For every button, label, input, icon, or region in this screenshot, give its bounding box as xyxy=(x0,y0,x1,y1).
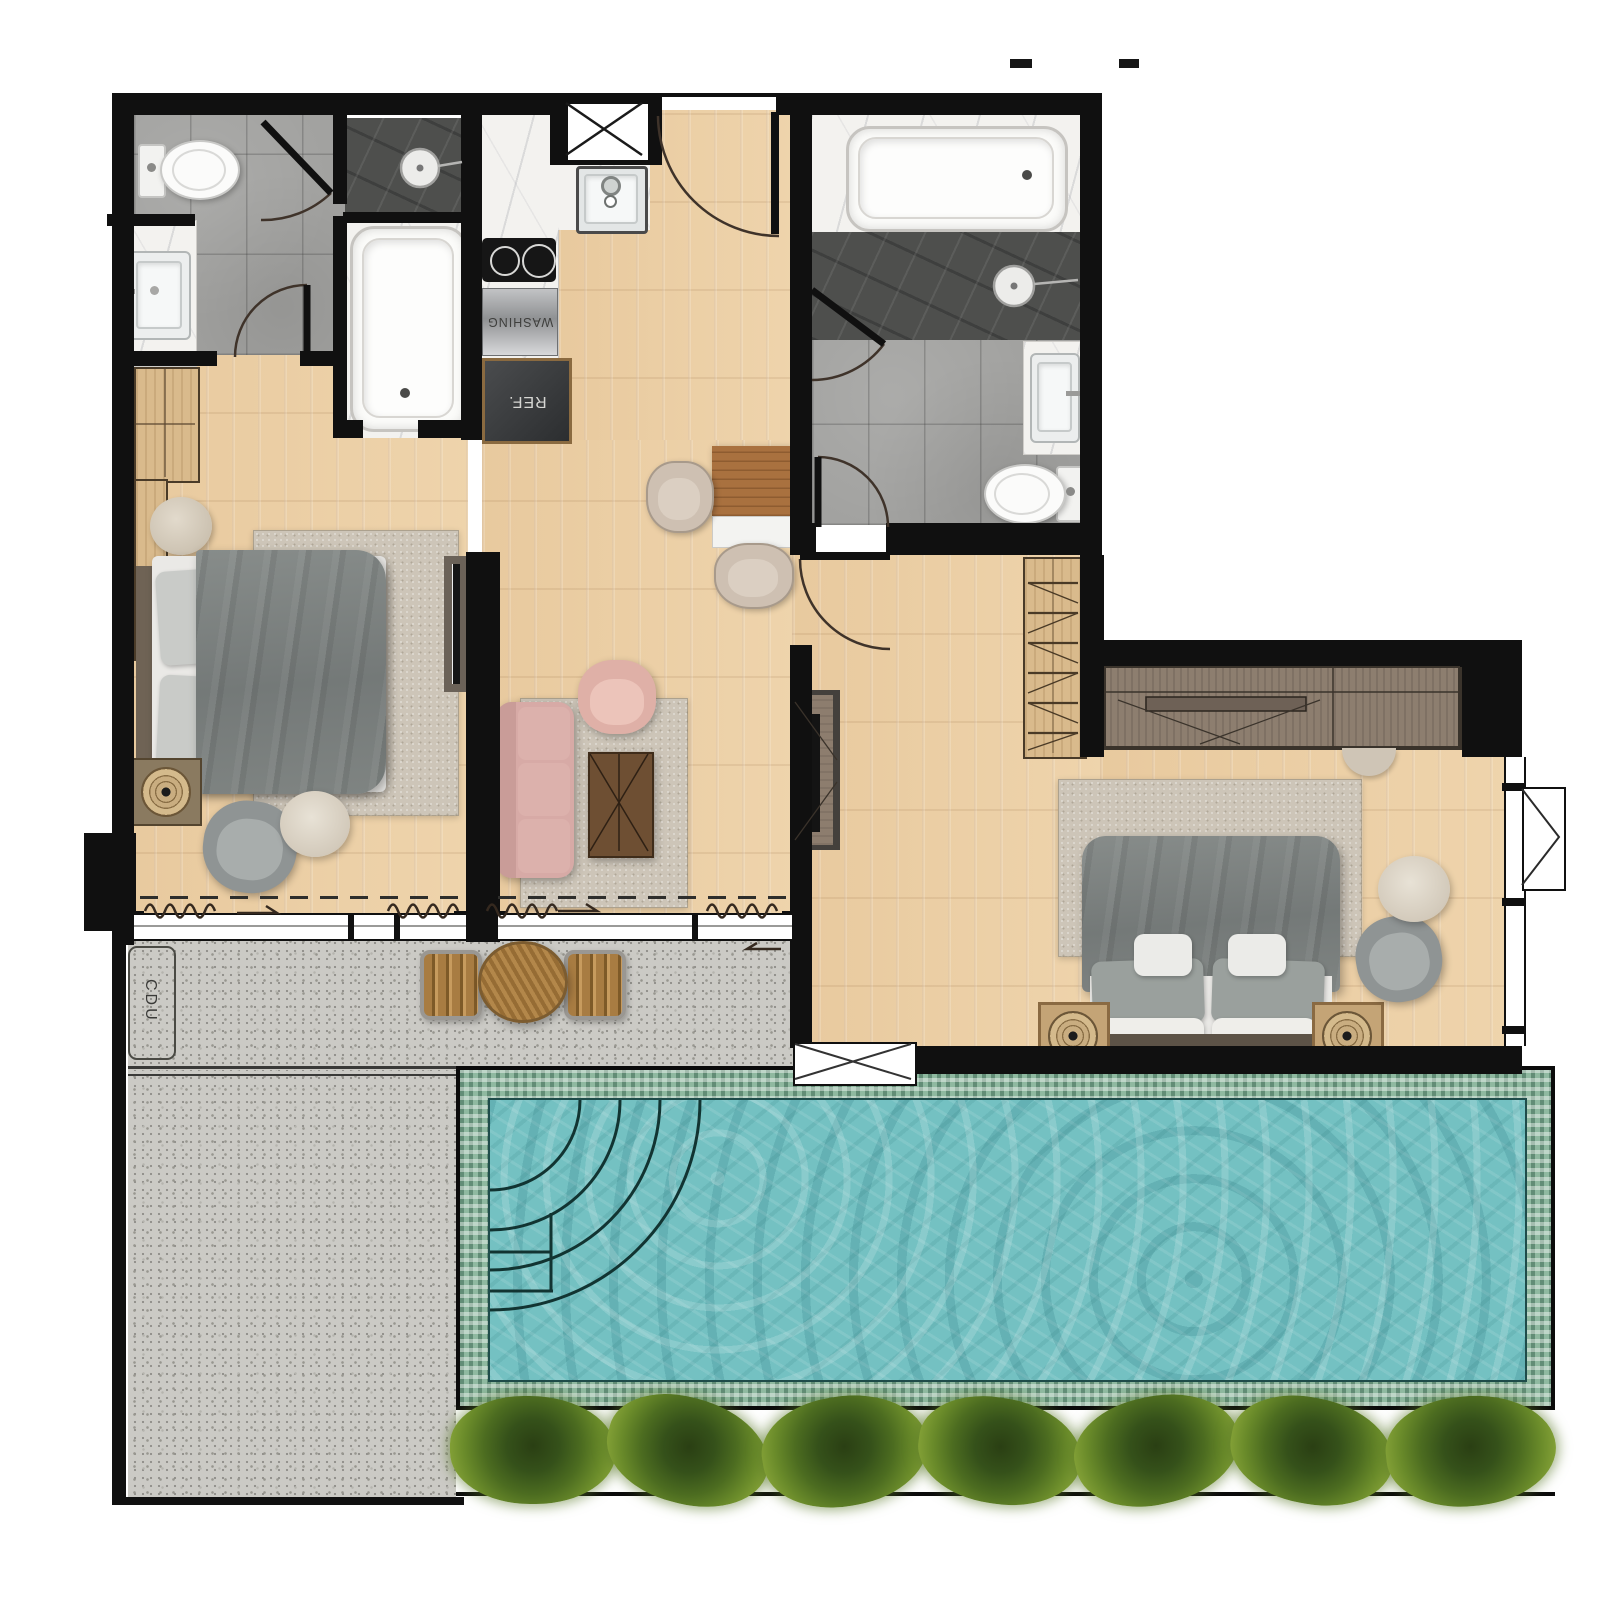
wall-bathroom1-bottom xyxy=(112,351,217,366)
wall-vanity1-stub xyxy=(107,214,195,226)
bathroom2-sink-basin xyxy=(1037,362,1072,432)
kitchen-faucet-knob xyxy=(604,195,617,208)
bedroom1-pouf xyxy=(150,497,212,555)
dining-chair xyxy=(714,543,794,609)
wall-shower1-stub xyxy=(333,112,347,204)
wall-left-lower xyxy=(112,945,126,1502)
wall-bathroom2-bottom xyxy=(886,523,1102,555)
bedroom1-nightstand xyxy=(128,758,202,826)
kitchen-faucet xyxy=(601,176,621,196)
bathtub2-drain xyxy=(1022,170,1032,180)
living-armchair xyxy=(578,660,656,734)
wall-bathroom2-left xyxy=(790,93,812,555)
floor-plan-canvas: WASHING REF. xyxy=(0,0,1600,1600)
bedroom1-wardrobe xyxy=(134,367,200,483)
bathroom1-faucet-knob xyxy=(150,286,159,295)
wall-left-pier xyxy=(84,833,136,931)
wall-yard-bottom xyxy=(112,1497,464,1505)
wall-bathroom2-bottom xyxy=(790,523,816,555)
bedroom1-duvet xyxy=(196,550,386,794)
wall-tub-room-left xyxy=(333,216,347,438)
master-pillow xyxy=(1228,934,1286,976)
terrace-chair xyxy=(564,950,626,1020)
terrace-chair xyxy=(420,950,482,1020)
terrace-table xyxy=(478,941,568,1023)
bathroom1-shower-floor xyxy=(345,118,463,216)
cooktop-burner xyxy=(490,246,520,276)
bedroom1-sliding-door xyxy=(134,913,466,941)
wall-partition-bedroom1-living xyxy=(466,552,500,942)
sofa-cushion xyxy=(518,819,570,873)
master-bottom-window xyxy=(793,1042,917,1086)
wall-bathroom1-right xyxy=(461,110,482,440)
sliding-door-track xyxy=(498,925,792,927)
coffee-table xyxy=(588,752,654,858)
wall-top-right xyxy=(776,93,1102,115)
wall-shower1-divider xyxy=(343,212,463,223)
wall-bathroom2-right xyxy=(1080,93,1102,555)
hedge-bush xyxy=(450,1396,616,1504)
bedroom1-side-table xyxy=(280,791,350,857)
dining-chair xyxy=(646,461,714,533)
bedroom1-tv xyxy=(452,564,460,684)
crop-mark xyxy=(1010,59,1032,68)
pool-water xyxy=(488,1098,1527,1382)
glass-frame-tick xyxy=(1502,1026,1526,1034)
bedroom1-bed-headboard xyxy=(136,566,152,780)
wall-partition-living-master xyxy=(790,645,812,1048)
wall-tub-room-bottom xyxy=(418,420,464,438)
walk-in-closet xyxy=(1023,557,1087,759)
terrace-edge-line xyxy=(128,1066,458,1069)
wall-master-ne-column xyxy=(1462,640,1522,757)
sofa xyxy=(496,702,574,878)
cdu-label: CDU xyxy=(141,979,159,1023)
living-sliding-door xyxy=(498,913,792,941)
cooktop xyxy=(482,238,556,282)
wall-tub-room-bottom xyxy=(345,420,363,438)
sliding-door-mullion xyxy=(348,915,354,939)
refrigerator-label: REF. xyxy=(508,392,547,410)
entrance-threshold xyxy=(658,93,778,97)
refrigerator: REF. xyxy=(482,358,572,444)
bathroom2-shower-floor xyxy=(812,232,1080,340)
sliding-door-mullion xyxy=(692,915,698,939)
master-side-table xyxy=(1378,856,1450,922)
sliding-door-track xyxy=(134,925,466,927)
cdu-label-box: CDU xyxy=(128,946,172,1056)
sofa-cushion xyxy=(518,707,570,760)
wall-master-top xyxy=(1096,640,1486,667)
bathtub-drain xyxy=(400,388,410,398)
curtain-track-living xyxy=(498,896,790,899)
master-casement-window xyxy=(1522,787,1566,891)
sliding-door-mullion xyxy=(394,915,400,939)
master-pillow xyxy=(1134,934,1192,976)
garden-hedge xyxy=(456,1408,1555,1496)
sofa-cushion xyxy=(518,763,570,816)
washing-machine-label: WASHING xyxy=(487,315,553,329)
glass-frame-tick xyxy=(1502,898,1526,906)
toilet-bowl-inner xyxy=(172,149,226,191)
side-paved-yard xyxy=(128,1070,456,1502)
toilet2-bowl-inner xyxy=(994,473,1050,515)
bedroom1-lamp xyxy=(141,767,191,817)
curtain-track-bedroom1 xyxy=(140,896,464,899)
washing-machine: WASHING xyxy=(482,288,558,356)
vent-shaft xyxy=(564,100,652,164)
terrace-edge-line xyxy=(128,1074,458,1076)
crop-mark xyxy=(1119,59,1139,68)
bathroom1-sink-basin xyxy=(136,261,182,329)
toilet-flush-button xyxy=(147,163,156,172)
dining-table-top xyxy=(712,446,792,516)
master-wardrobe-dresser xyxy=(1103,665,1462,750)
toilet2-flush-button xyxy=(1066,487,1075,496)
cooktop-burner xyxy=(522,244,556,278)
